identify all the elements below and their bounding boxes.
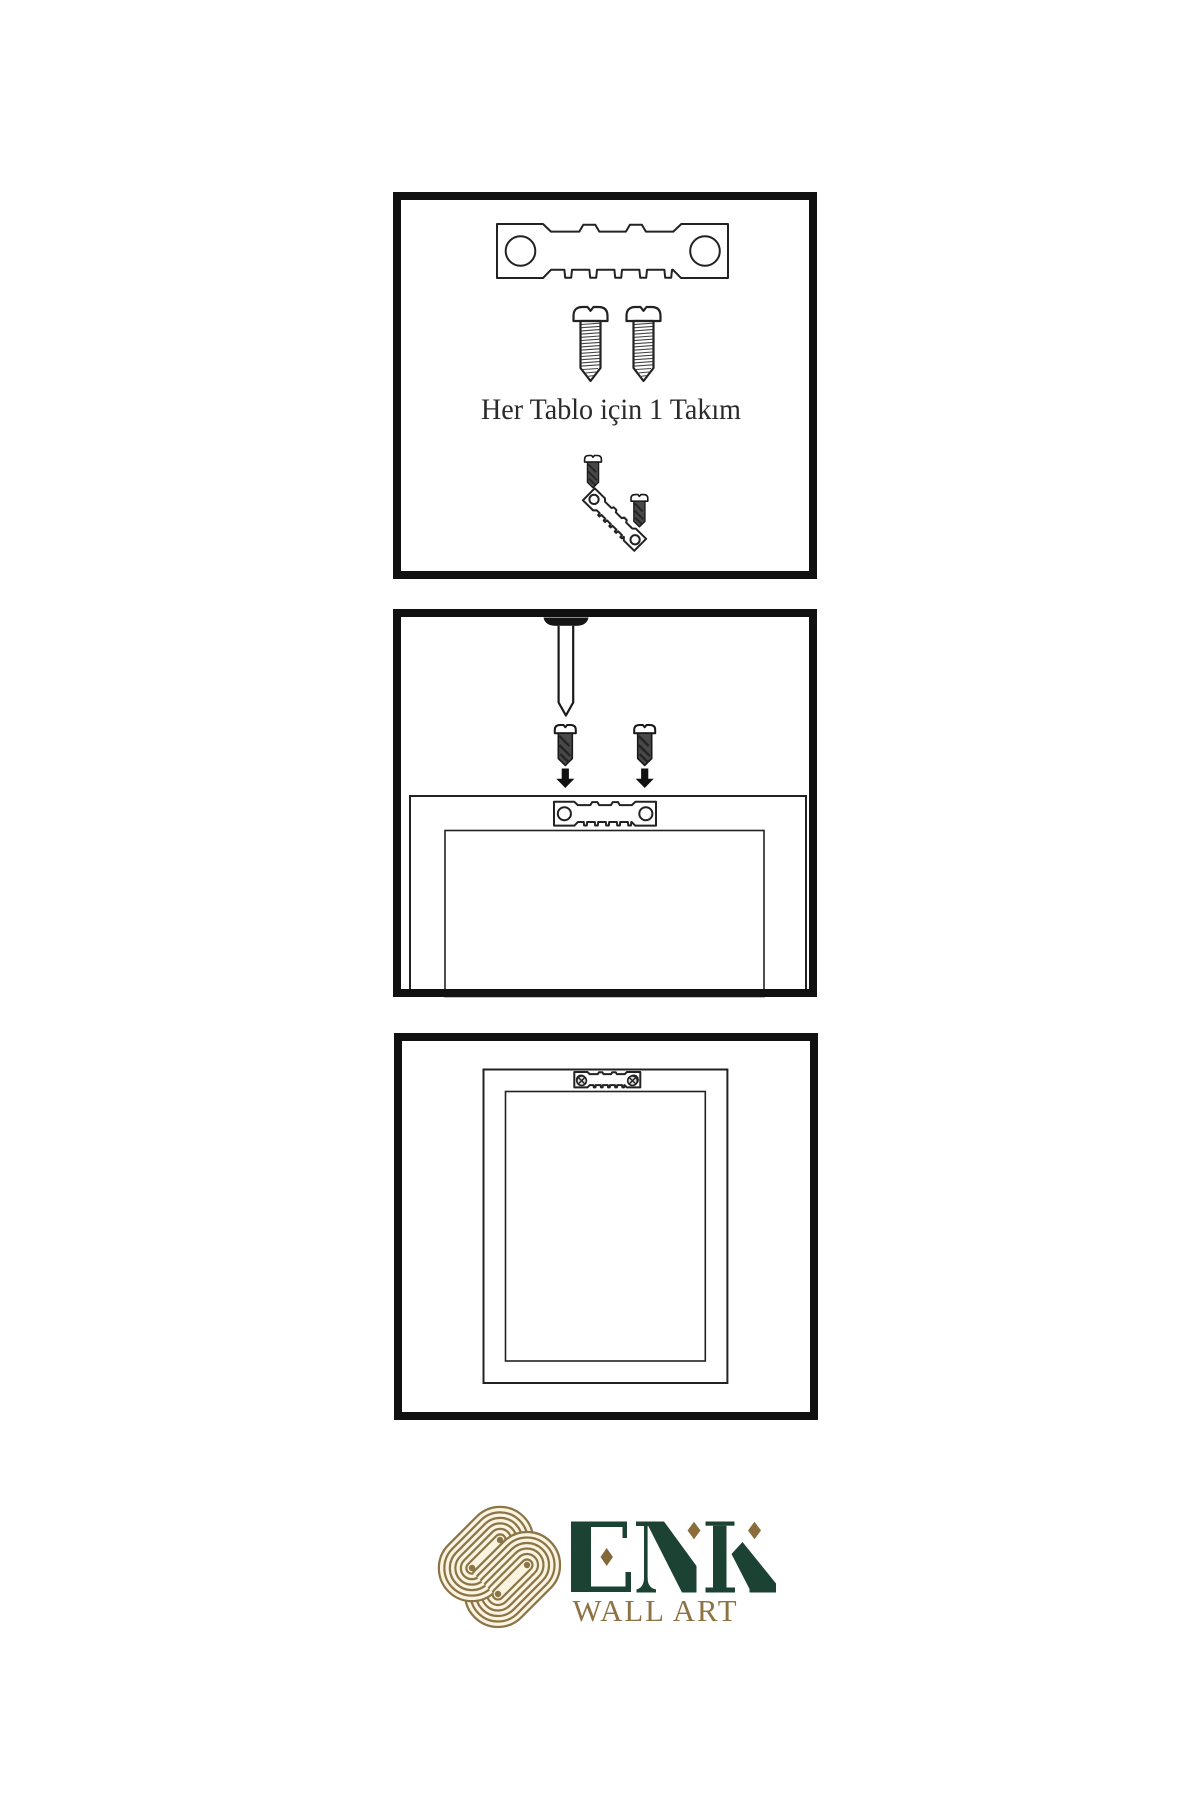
svg-text:WALL ART: WALL ART: [573, 1593, 739, 1628]
svg-text:Her Tablo için 1 Takım: Her Tablo için 1 Takım: [481, 393, 741, 426]
